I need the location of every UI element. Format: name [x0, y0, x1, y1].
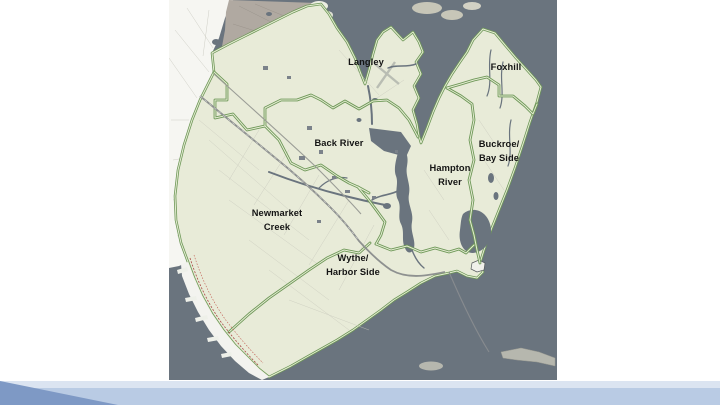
region-label-langley: Langley	[348, 57, 385, 67]
map-canvas: Langley Foxhill Back River Buckroe/ Bay …	[169, 0, 557, 380]
slide-background: Langley Foxhill Back River Buckroe/ Bay …	[0, 0, 720, 405]
region-label-hampton-river-line1: Hampton	[430, 163, 471, 173]
region-label-buckroe-line1: Buckroe/	[479, 139, 520, 149]
region-label-wythe-line2: Harbor Side	[326, 267, 380, 277]
region-label-newmarket-line1: Newmarket	[252, 208, 303, 218]
hampton-watersheds-map: Langley Foxhill Back River Buckroe/ Bay …	[169, 0, 557, 380]
creek-pond	[383, 203, 391, 209]
region-label-back-river: Back River	[314, 138, 363, 148]
footer-accent-strip	[0, 381, 720, 388]
footer-accent-bar	[0, 388, 720, 405]
region-label-buckroe-line2: Bay Side	[479, 153, 519, 163]
region-label-newmarket-line2: Creek	[264, 222, 291, 232]
region-label-wythe-line1: Wythe/	[338, 253, 369, 263]
region-label-foxhill: Foxhill	[491, 62, 522, 72]
region-label-hampton-river-line2: River	[438, 177, 462, 187]
